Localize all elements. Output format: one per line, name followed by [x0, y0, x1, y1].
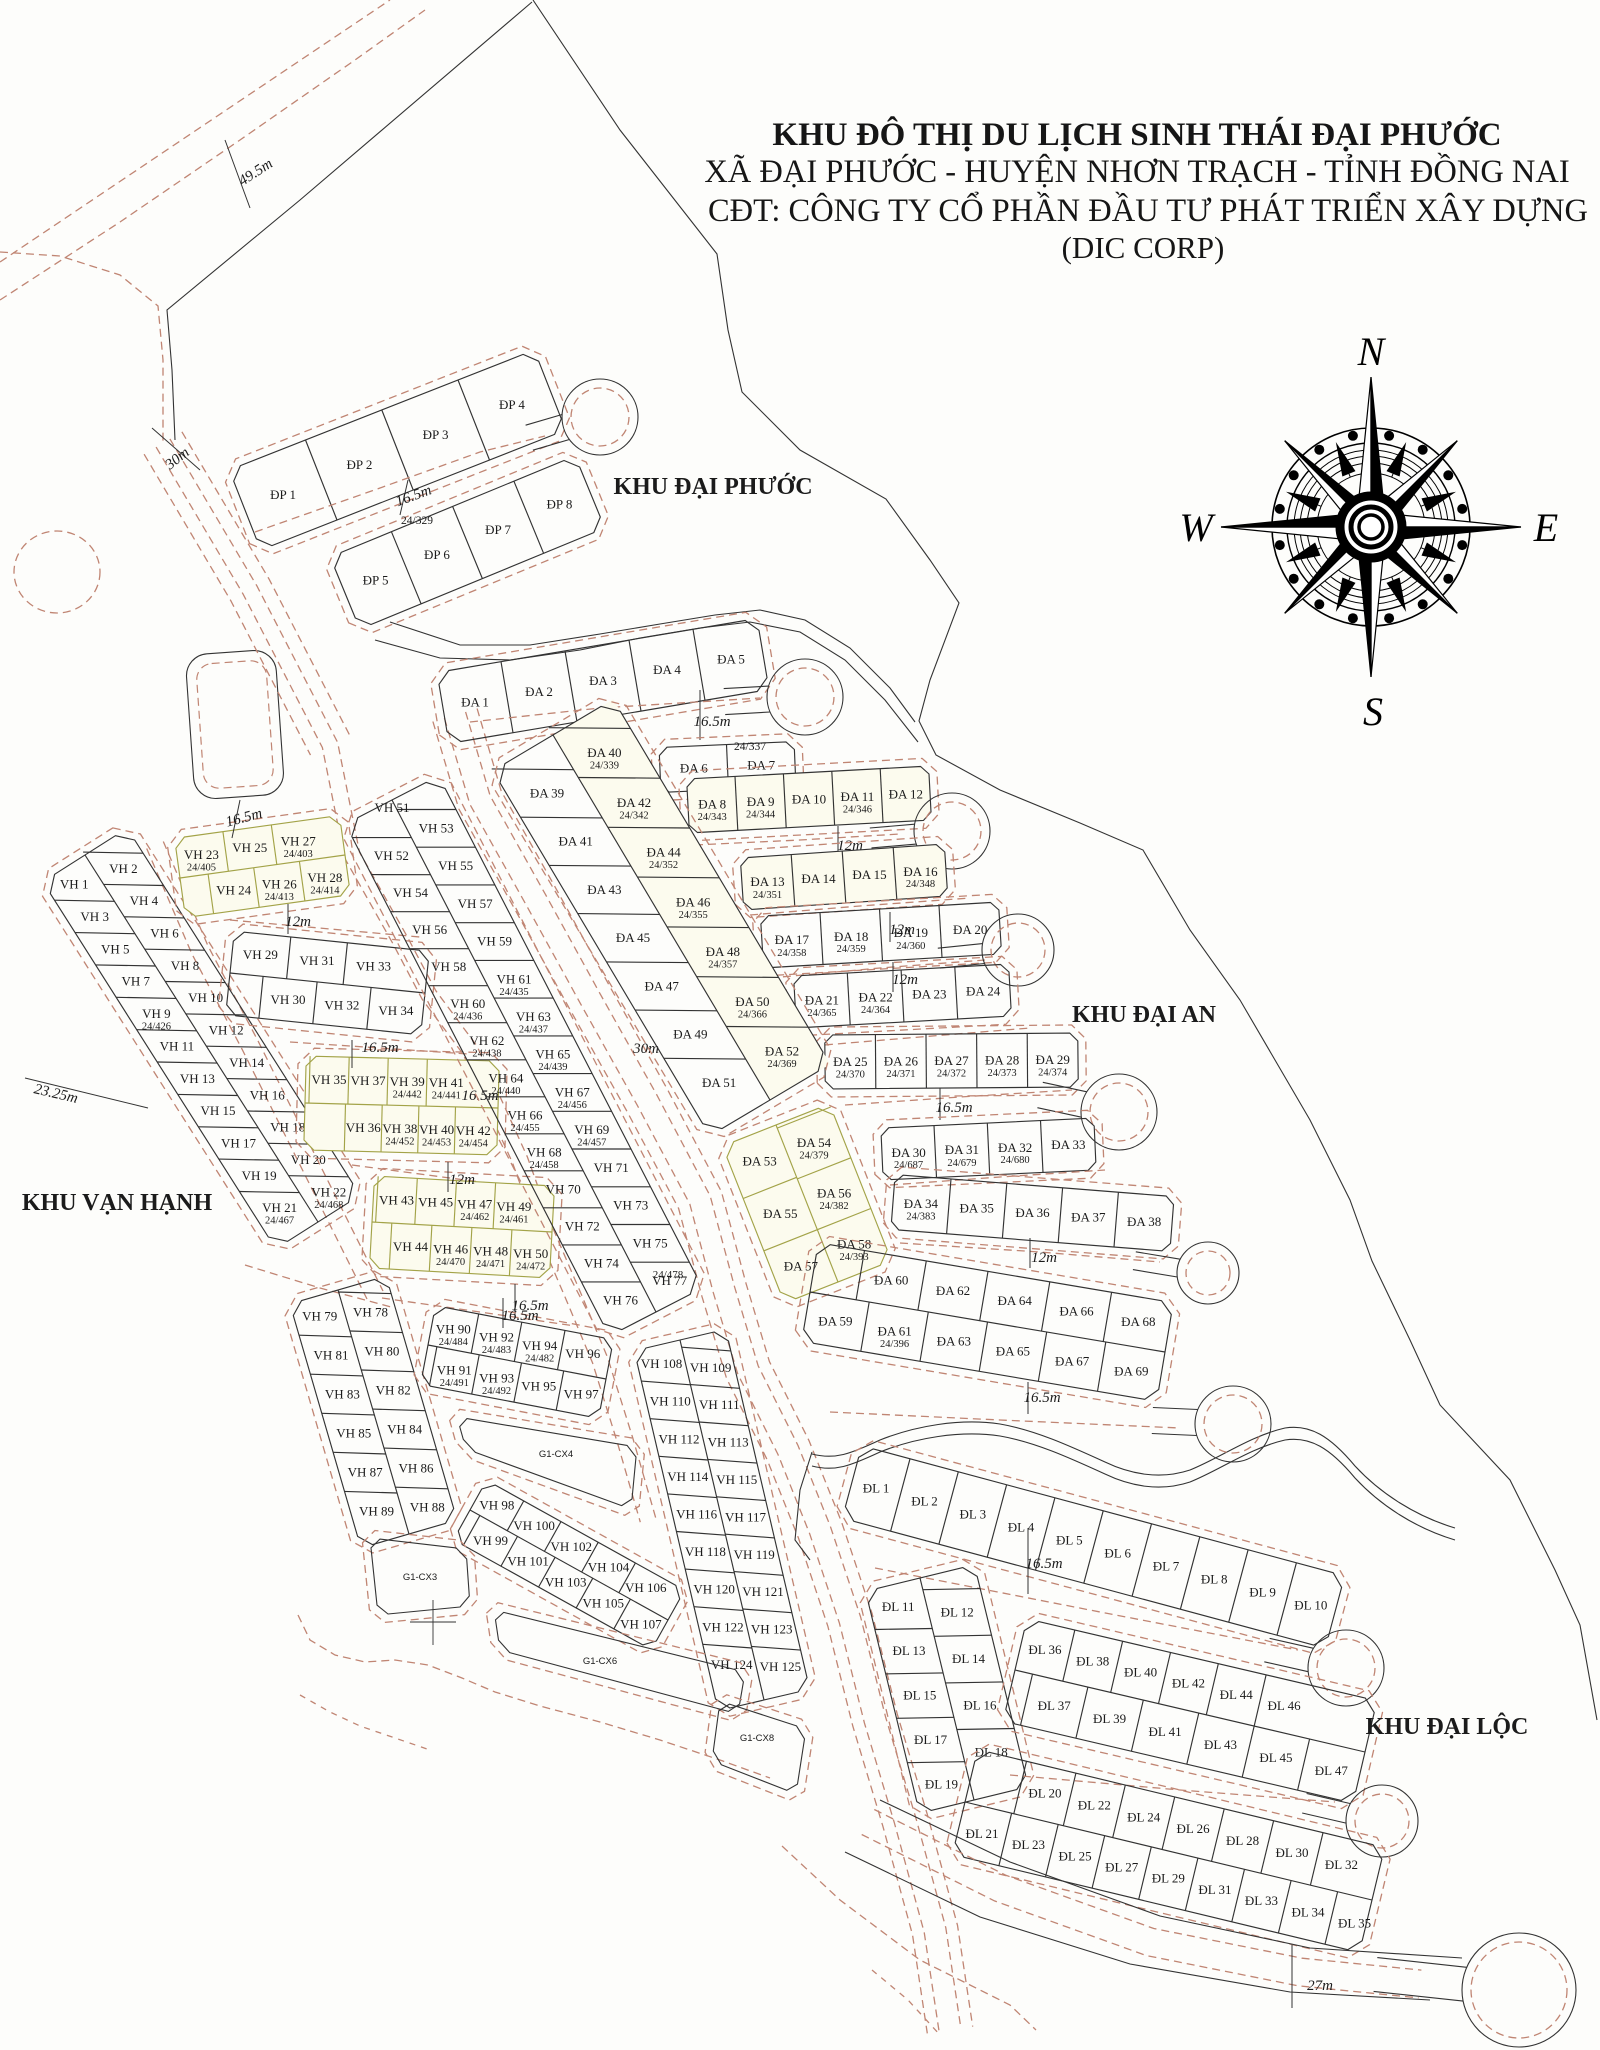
svg-text:VH 53: VH 53 [419, 820, 454, 835]
svg-text:24/373: 24/373 [988, 1068, 1017, 1079]
svg-text:ĐL 26: ĐL 26 [1177, 1821, 1211, 1836]
svg-text:ĐL 23: ĐL 23 [1012, 1837, 1045, 1852]
svg-text:VH 35: VH 35 [311, 1072, 346, 1087]
svg-text:VH 89: VH 89 [359, 1504, 394, 1519]
svg-text:VH 99: VH 99 [473, 1533, 508, 1548]
svg-text:VH 74: VH 74 [584, 1255, 620, 1270]
svg-text:VH 106: VH 106 [625, 1580, 667, 1595]
svg-text:ĐL 21: ĐL 21 [965, 1826, 998, 1841]
svg-text:VH 113: VH 113 [708, 1435, 749, 1450]
svg-text:E: E [1533, 505, 1558, 550]
svg-text:VH 44: VH 44 [393, 1239, 429, 1254]
svg-text:24/483: 24/483 [482, 1345, 511, 1356]
svg-text:ĐA 42: ĐA 42 [617, 795, 651, 810]
svg-text:ĐL 38: ĐL 38 [1076, 1653, 1109, 1668]
svg-text:G1-CX8: G1-CX8 [740, 1733, 774, 1744]
svg-text:VH 61: VH 61 [496, 971, 531, 986]
svg-text:24/359: 24/359 [837, 944, 866, 955]
svg-text:ĐA 55: ĐA 55 [763, 1206, 797, 1221]
svg-text:VH 102: VH 102 [551, 1539, 593, 1554]
svg-text:24/471: 24/471 [476, 1259, 505, 1270]
svg-text:ĐL 9: ĐL 9 [1249, 1585, 1276, 1600]
svg-text:ĐA 20: ĐA 20 [953, 922, 987, 937]
svg-text:VH 29: VH 29 [243, 947, 278, 962]
svg-text:VH 23: VH 23 [184, 847, 219, 862]
svg-text:VH 5: VH 5 [101, 941, 130, 956]
svg-text:24/358: 24/358 [777, 948, 806, 959]
svg-text:ĐA 19: ĐA 19 [894, 925, 928, 940]
svg-text:VH 39: VH 39 [390, 1074, 425, 1089]
svg-text:VH 45: VH 45 [418, 1195, 453, 1210]
svg-text:24/348: 24/348 [906, 879, 935, 890]
svg-text:24/461: 24/461 [499, 1214, 528, 1225]
svg-text:24/441: 24/441 [432, 1091, 461, 1102]
svg-text:ĐA 6: ĐA 6 [680, 761, 708, 776]
svg-text:24/379: 24/379 [799, 1151, 828, 1162]
svg-text:24/468: 24/468 [314, 1200, 343, 1211]
svg-text:ĐA 9: ĐA 9 [747, 794, 775, 809]
svg-text:24/343: 24/343 [698, 812, 727, 823]
svg-text:VH 17: VH 17 [221, 1136, 257, 1151]
svg-text:VH 119: VH 119 [734, 1547, 775, 1562]
svg-text:ĐA 30: ĐA 30 [891, 1145, 925, 1160]
svg-text:24/454: 24/454 [459, 1138, 489, 1149]
svg-text:ĐL 29: ĐL 29 [1152, 1871, 1185, 1886]
svg-text:ĐL 15: ĐL 15 [903, 1688, 936, 1703]
svg-text:24/413: 24/413 [265, 892, 294, 903]
svg-text:24/370: 24/370 [836, 1069, 865, 1080]
svg-text:VH 62: VH 62 [469, 1033, 504, 1048]
svg-text:VH 6: VH 6 [150, 926, 179, 941]
svg-text:ĐA 41: ĐA 41 [559, 834, 593, 849]
svg-text:24/438: 24/438 [472, 1049, 501, 1060]
svg-text:ĐL 2: ĐL 2 [911, 1494, 938, 1509]
svg-text:ĐL 28: ĐL 28 [1226, 1833, 1259, 1848]
svg-text:24/405: 24/405 [187, 862, 216, 873]
svg-text:VH 114: VH 114 [667, 1469, 709, 1484]
svg-text:ĐL 22: ĐL 22 [1078, 1797, 1111, 1812]
svg-text:ĐA 21: ĐA 21 [805, 993, 839, 1008]
svg-text:ĐA 24: ĐA 24 [966, 984, 1001, 999]
svg-text:ĐP 7: ĐP 7 [485, 522, 511, 537]
svg-text:12m: 12m [285, 914, 311, 930]
svg-text:VH 69: VH 69 [574, 1122, 609, 1137]
svg-text:ĐL 10: ĐL 10 [1294, 1598, 1327, 1613]
svg-text:24/339: 24/339 [590, 761, 619, 772]
svg-text:VH 73: VH 73 [613, 1198, 648, 1213]
svg-text:ĐP 3: ĐP 3 [423, 427, 449, 442]
svg-text:ĐA 13: ĐA 13 [750, 874, 784, 889]
svg-text:ĐA 63: ĐA 63 [937, 1334, 971, 1349]
svg-text:ĐP 1: ĐP 1 [270, 487, 296, 502]
svg-text:ĐL 44: ĐL 44 [1220, 1687, 1254, 1702]
svg-text:24/426: 24/426 [142, 1022, 171, 1033]
svg-text:VH 64: VH 64 [488, 1070, 524, 1085]
svg-text:VH 24: VH 24 [216, 883, 252, 898]
svg-text:ĐA 28: ĐA 28 [985, 1053, 1019, 1068]
svg-text:24/452: 24/452 [385, 1137, 414, 1148]
svg-text:VH 9: VH 9 [142, 1006, 171, 1021]
svg-text:VH 7: VH 7 [122, 974, 151, 989]
svg-text:24/369: 24/369 [767, 1059, 796, 1070]
svg-text:VH 82: VH 82 [376, 1382, 411, 1397]
svg-text:ĐA 25: ĐA 25 [833, 1054, 867, 1069]
svg-text:24/435: 24/435 [499, 987, 528, 998]
svg-text:ĐL 40: ĐL 40 [1124, 1665, 1157, 1680]
svg-text:VH 18: VH 18 [270, 1120, 305, 1135]
svg-text:VH 88: VH 88 [410, 1500, 445, 1515]
svg-text:W: W [1179, 505, 1216, 550]
svg-text:12m: 12m [449, 1172, 475, 1188]
svg-text:ĐA 32: ĐA 32 [998, 1140, 1032, 1155]
svg-text:24/344: 24/344 [746, 810, 776, 821]
svg-text:ĐL 12: ĐL 12 [941, 1605, 974, 1620]
svg-text:24/442: 24/442 [393, 1090, 422, 1101]
svg-text:VH 85: VH 85 [336, 1426, 371, 1441]
svg-text:24/383: 24/383 [906, 1212, 935, 1223]
svg-text:ĐL 27: ĐL 27 [1105, 1860, 1139, 1875]
svg-text:24/352: 24/352 [649, 860, 678, 871]
svg-text:16.5m: 16.5m [693, 714, 730, 730]
svg-text:VH 22: VH 22 [311, 1184, 346, 1199]
svg-text:24/437: 24/437 [519, 1025, 548, 1036]
svg-text:ĐL 5: ĐL 5 [1056, 1533, 1083, 1548]
svg-text:ĐA 33: ĐA 33 [1051, 1137, 1085, 1152]
svg-text:VH 30: VH 30 [270, 992, 305, 1007]
svg-text:16.5m: 16.5m [1025, 1556, 1062, 1572]
svg-text:VH 79: VH 79 [302, 1309, 337, 1324]
svg-text:ĐL 16: ĐL 16 [963, 1698, 997, 1713]
svg-text:G1-CX4: G1-CX4 [539, 1449, 573, 1460]
svg-text:ĐA 37: ĐA 37 [1071, 1209, 1106, 1224]
svg-text:VH 80: VH 80 [364, 1343, 399, 1358]
svg-text:ĐL 37: ĐL 37 [1038, 1698, 1072, 1713]
svg-text:24/366: 24/366 [738, 1009, 767, 1020]
svg-text:KHU ĐÔ THỊ DU LỊCH SINH THÁI Đ: KHU ĐÔ THỊ DU LỊCH SINH THÁI ĐẠI PHƯỚC [772, 115, 1501, 153]
svg-text:ĐA 46: ĐA 46 [676, 894, 711, 909]
svg-text:VH 109: VH 109 [690, 1360, 732, 1375]
svg-text:S: S [1363, 689, 1383, 734]
svg-text:VH 52: VH 52 [374, 848, 409, 863]
svg-text:ĐA 12: ĐA 12 [889, 786, 923, 801]
svg-text:VH 78: VH 78 [353, 1304, 388, 1319]
svg-text:VH 112: VH 112 [658, 1431, 699, 1446]
svg-text:24/346: 24/346 [843, 804, 872, 815]
svg-text:ĐA 69: ĐA 69 [1114, 1364, 1148, 1379]
svg-text:ĐL 34: ĐL 34 [1291, 1904, 1325, 1919]
svg-text:ĐA 50: ĐA 50 [735, 994, 769, 1009]
svg-text:ĐA 1: ĐA 1 [461, 695, 489, 710]
svg-text:VH 108: VH 108 [641, 1356, 683, 1371]
svg-text:VH 19: VH 19 [242, 1168, 277, 1183]
svg-text:ĐA 53: ĐA 53 [742, 1154, 776, 1169]
svg-text:VH 11: VH 11 [160, 1038, 195, 1053]
svg-text:ĐP 4: ĐP 4 [499, 397, 525, 412]
svg-text:24/458: 24/458 [530, 1160, 559, 1171]
svg-text:24/357: 24/357 [708, 960, 737, 971]
svg-text:VH 59: VH 59 [477, 934, 512, 949]
svg-text:ĐL 45: ĐL 45 [1259, 1750, 1292, 1765]
svg-text:ĐA 52: ĐA 52 [765, 1044, 799, 1059]
svg-text:VH 4: VH 4 [130, 893, 159, 908]
svg-text:ĐA 65: ĐA 65 [996, 1344, 1030, 1359]
svg-text:24/457: 24/457 [577, 1138, 606, 1149]
svg-text:24/491: 24/491 [440, 1378, 469, 1389]
svg-text:ĐA 14: ĐA 14 [801, 871, 836, 886]
svg-text:VH 14: VH 14 [229, 1055, 265, 1070]
svg-text:VH 95: VH 95 [521, 1379, 556, 1394]
svg-text:VH 63: VH 63 [516, 1009, 551, 1024]
svg-text:VH 54: VH 54 [393, 885, 429, 900]
svg-text:ĐP 8: ĐP 8 [546, 497, 572, 512]
svg-text:24/484: 24/484 [439, 1337, 469, 1348]
svg-text:ĐA 54: ĐA 54 [797, 1135, 832, 1150]
svg-text:VH 60: VH 60 [450, 996, 485, 1011]
svg-text:KHU ĐẠI LỘC: KHU ĐẠI LỘC [1366, 1714, 1529, 1740]
svg-text:12m: 12m [1031, 1250, 1057, 1266]
svg-text:ĐA 31: ĐA 31 [945, 1142, 979, 1157]
svg-text:ĐA 40: ĐA 40 [587, 745, 621, 760]
svg-text:ĐA 10: ĐA 10 [792, 792, 826, 807]
svg-text:(DIC CORP): (DIC CORP) [1062, 230, 1225, 265]
svg-text:ĐP 6: ĐP 6 [424, 547, 450, 562]
svg-text:ĐL 1: ĐL 1 [863, 1481, 890, 1496]
svg-text:ĐL 30: ĐL 30 [1275, 1845, 1308, 1860]
svg-text:G1-CX6: G1-CX6 [583, 1656, 617, 1667]
svg-text:ĐA 56: ĐA 56 [817, 1186, 852, 1201]
svg-text:VH 58: VH 58 [431, 959, 466, 974]
svg-text:16.5m: 16.5m [501, 1308, 538, 1324]
svg-text:KHU ĐẠI AN: KHU ĐẠI AN [1072, 1002, 1217, 1028]
svg-text:24/482: 24/482 [525, 1354, 554, 1365]
svg-text:ĐL 39: ĐL 39 [1093, 1711, 1126, 1726]
svg-text:24/436: 24/436 [453, 1012, 482, 1023]
svg-text:VH 81: VH 81 [313, 1348, 348, 1363]
svg-text:VH 40: VH 40 [419, 1122, 454, 1137]
svg-text:VH 92: VH 92 [479, 1330, 514, 1345]
svg-text:VH 28: VH 28 [307, 870, 342, 885]
svg-text:ĐA 67: ĐA 67 [1055, 1354, 1090, 1369]
svg-text:16.5m: 16.5m [935, 1100, 972, 1116]
svg-text:24/355: 24/355 [679, 910, 708, 921]
svg-text:VH 46: VH 46 [433, 1241, 469, 1256]
svg-text:VH 21: VH 21 [262, 1200, 297, 1215]
svg-text:VH 70: VH 70 [546, 1181, 581, 1196]
svg-text:ĐL 17: ĐL 17 [914, 1732, 948, 1747]
svg-text:24/374: 24/374 [1038, 1068, 1068, 1079]
svg-text:ĐA 11: ĐA 11 [840, 789, 874, 804]
svg-text:VH 32: VH 32 [324, 998, 359, 1013]
svg-text:VH 118: VH 118 [685, 1544, 726, 1559]
svg-text:CĐT: CÔNG TY CỔ PHẦN ĐẦU TƯ PH: CĐT: CÔNG TY CỔ PHẦN ĐẦU TƯ PHÁT TRIỂN X… [708, 192, 1588, 229]
svg-text:ĐA 22: ĐA 22 [858, 990, 892, 1005]
svg-text:ĐA 17: ĐA 17 [775, 932, 810, 947]
svg-text:24/396: 24/396 [880, 1339, 909, 1350]
svg-text:24/342: 24/342 [619, 810, 648, 821]
svg-text:VH 25: VH 25 [232, 840, 267, 855]
svg-text:24/403: 24/403 [284, 849, 313, 860]
svg-text:VH 8: VH 8 [171, 958, 200, 973]
svg-text:VH 56: VH 56 [412, 922, 448, 937]
svg-text:VH 94: VH 94 [522, 1338, 558, 1353]
svg-text:KHU VẠN HẠNH: KHU VẠN HẠNH [22, 1190, 213, 1216]
svg-text:24/472: 24/472 [516, 1261, 545, 1272]
svg-text:VH 103: VH 103 [545, 1575, 587, 1590]
svg-text:VH 110: VH 110 [650, 1394, 691, 1409]
svg-text:ĐL 18: ĐL 18 [975, 1744, 1008, 1759]
svg-text:VH 2: VH 2 [109, 861, 138, 876]
svg-text:24/360: 24/360 [896, 941, 925, 952]
svg-text:VH 43: VH 43 [379, 1192, 414, 1207]
svg-text:ĐA 39: ĐA 39 [530, 785, 564, 800]
svg-text:KHU ĐẠI PHƯỚC: KHU ĐẠI PHƯỚC [613, 473, 812, 500]
svg-text:ĐA 51: ĐA 51 [702, 1075, 736, 1090]
svg-text:VH 86: VH 86 [398, 1461, 434, 1476]
svg-text:VH 10: VH 10 [188, 990, 223, 1005]
svg-text:ĐP 2: ĐP 2 [346, 457, 372, 472]
svg-text:ĐA 34: ĐA 34 [904, 1196, 939, 1211]
svg-text:ĐA 5: ĐA 5 [717, 651, 745, 666]
svg-text:VH 66: VH 66 [507, 1107, 543, 1122]
svg-text:VH 125: VH 125 [760, 1659, 802, 1674]
svg-text:24/478: 24/478 [653, 1269, 684, 1281]
svg-text:VH 100: VH 100 [513, 1518, 555, 1533]
svg-text:24/462: 24/462 [460, 1212, 489, 1223]
svg-text:VH 27: VH 27 [281, 833, 317, 848]
svg-text:VH 13: VH 13 [180, 1071, 215, 1086]
svg-text:ĐL 24: ĐL 24 [1127, 1809, 1161, 1824]
svg-text:ĐL 6: ĐL 6 [1104, 1546, 1131, 1561]
svg-text:VH 55: VH 55 [438, 858, 473, 873]
svg-text:G1-CX3: G1-CX3 [403, 1572, 437, 1583]
svg-text:24/371: 24/371 [886, 1069, 915, 1080]
svg-text:ĐA 4: ĐA 4 [653, 662, 681, 677]
svg-text:VH 50: VH 50 [513, 1246, 548, 1261]
svg-text:ĐL 31: ĐL 31 [1198, 1882, 1231, 1897]
svg-text:ĐL 46: ĐL 46 [1268, 1698, 1302, 1713]
svg-text:ĐL 20: ĐL 20 [1028, 1786, 1061, 1801]
svg-text:ĐL 42: ĐL 42 [1172, 1676, 1205, 1691]
svg-text:ĐA 43: ĐA 43 [587, 882, 621, 897]
svg-text:24/372: 24/372 [937, 1069, 966, 1080]
svg-text:16.5m: 16.5m [361, 1040, 398, 1056]
svg-text:27m: 27m [1307, 1978, 1333, 1994]
svg-text:VH 67: VH 67 [555, 1085, 591, 1100]
svg-text:ĐA 62: ĐA 62 [936, 1283, 970, 1298]
svg-text:ĐL 13: ĐL 13 [892, 1643, 925, 1658]
svg-text:ĐA 47: ĐA 47 [645, 978, 680, 993]
svg-text:VH 104: VH 104 [588, 1560, 630, 1575]
svg-text:VH 47: VH 47 [457, 1197, 493, 1212]
svg-text:ĐL 8: ĐL 8 [1201, 1572, 1228, 1587]
svg-text:ĐA 2: ĐA 2 [525, 684, 553, 699]
svg-text:24/329: 24/329 [401, 515, 433, 527]
svg-text:VH 41: VH 41 [429, 1075, 464, 1090]
svg-text:24/680: 24/680 [1001, 1155, 1030, 1166]
svg-text:VH 91: VH 91 [437, 1362, 472, 1377]
svg-text:VH 124: VH 124 [711, 1657, 753, 1672]
svg-text:N: N [1357, 329, 1387, 374]
svg-text:ĐA 60: ĐA 60 [874, 1272, 908, 1287]
svg-text:ĐL 41: ĐL 41 [1149, 1724, 1182, 1739]
svg-text:ĐA 61: ĐA 61 [877, 1324, 911, 1339]
svg-text:VH 84: VH 84 [387, 1421, 423, 1436]
svg-text:ĐA 68: ĐA 68 [1121, 1314, 1155, 1329]
svg-text:ĐA 64: ĐA 64 [998, 1293, 1033, 1308]
svg-text:VH 83: VH 83 [325, 1387, 360, 1402]
svg-text:VH 122: VH 122 [702, 1619, 744, 1634]
svg-text:VH 98: VH 98 [479, 1498, 514, 1513]
svg-text:VH 75: VH 75 [633, 1235, 668, 1250]
svg-text:VH 38: VH 38 [382, 1121, 417, 1136]
svg-text:ĐL 33: ĐL 33 [1245, 1893, 1278, 1908]
svg-text:VH 48: VH 48 [473, 1244, 508, 1259]
svg-text:ĐA 44: ĐA 44 [646, 845, 681, 860]
svg-text:VH 111: VH 111 [699, 1397, 740, 1412]
svg-text:ĐA 18: ĐA 18 [834, 929, 868, 944]
svg-text:VH 65: VH 65 [535, 1047, 570, 1062]
svg-text:ĐA 66: ĐA 66 [1059, 1304, 1094, 1319]
svg-text:VH 105: VH 105 [583, 1596, 625, 1611]
svg-text:VH 49: VH 49 [496, 1199, 531, 1214]
svg-text:ĐL 36: ĐL 36 [1028, 1642, 1062, 1657]
svg-text:VH 3: VH 3 [80, 909, 109, 924]
svg-text:VH 90: VH 90 [436, 1322, 471, 1337]
svg-text:24/453: 24/453 [422, 1137, 451, 1148]
svg-text:VH 115: VH 115 [716, 1472, 757, 1487]
svg-text:ĐA 38: ĐA 38 [1127, 1214, 1161, 1229]
svg-text:ĐA 23: ĐA 23 [912, 987, 946, 1002]
svg-text:VH 116: VH 116 [676, 1507, 718, 1522]
svg-text:24/679: 24/679 [947, 1158, 976, 1169]
svg-text:VH 36: VH 36 [346, 1120, 382, 1135]
svg-text:ĐA 35: ĐA 35 [960, 1201, 994, 1216]
svg-text:ĐA 29: ĐA 29 [1036, 1052, 1070, 1067]
svg-text:ĐA 48: ĐA 48 [706, 944, 740, 959]
svg-text:ĐA 16: ĐA 16 [903, 864, 938, 879]
svg-text:VH 107: VH 107 [620, 1616, 662, 1631]
svg-text:VH 87: VH 87 [348, 1465, 384, 1480]
svg-text:24/467: 24/467 [265, 1216, 294, 1227]
svg-text:VH 76: VH 76 [603, 1292, 639, 1307]
svg-text:VH 31: VH 31 [299, 953, 334, 968]
svg-text:XÃ ĐẠI PHƯỚC - HUYỆN NHƠN TRẠC: XÃ ĐẠI PHƯỚC - HUYỆN NHƠN TRẠCH - TỈNH Đ… [704, 153, 1569, 190]
svg-text:VH 51: VH 51 [374, 800, 409, 815]
svg-text:VH 96: VH 96 [565, 1346, 601, 1361]
svg-text:ĐP 5: ĐP 5 [363, 572, 389, 587]
svg-text:ĐL 4: ĐL 4 [1008, 1520, 1035, 1535]
svg-text:24/456: 24/456 [558, 1100, 587, 1111]
svg-text:24/492: 24/492 [482, 1386, 511, 1397]
svg-text:ĐA 49: ĐA 49 [673, 1027, 707, 1042]
svg-text:VH 1: VH 1 [60, 877, 89, 892]
svg-text:ĐL 11: ĐL 11 [882, 1599, 915, 1614]
svg-text:VH 121: VH 121 [742, 1584, 784, 1599]
svg-text:ĐA 15: ĐA 15 [852, 867, 886, 882]
svg-text:24/337: 24/337 [734, 741, 766, 753]
svg-text:ĐA 36: ĐA 36 [1015, 1205, 1050, 1220]
svg-text:VH 93: VH 93 [479, 1371, 514, 1386]
svg-text:VH 71: VH 71 [594, 1160, 629, 1175]
svg-text:24/455: 24/455 [510, 1123, 539, 1134]
svg-text:ĐA 59: ĐA 59 [818, 1314, 852, 1329]
svg-text:24/351: 24/351 [753, 890, 782, 901]
svg-text:VH 97: VH 97 [564, 1387, 600, 1402]
svg-text:VH 117: VH 117 [725, 1509, 767, 1524]
svg-text:ĐA 7: ĐA 7 [747, 758, 775, 773]
svg-text:24/440: 24/440 [491, 1086, 520, 1097]
svg-text:ĐL 43: ĐL 43 [1204, 1737, 1237, 1752]
